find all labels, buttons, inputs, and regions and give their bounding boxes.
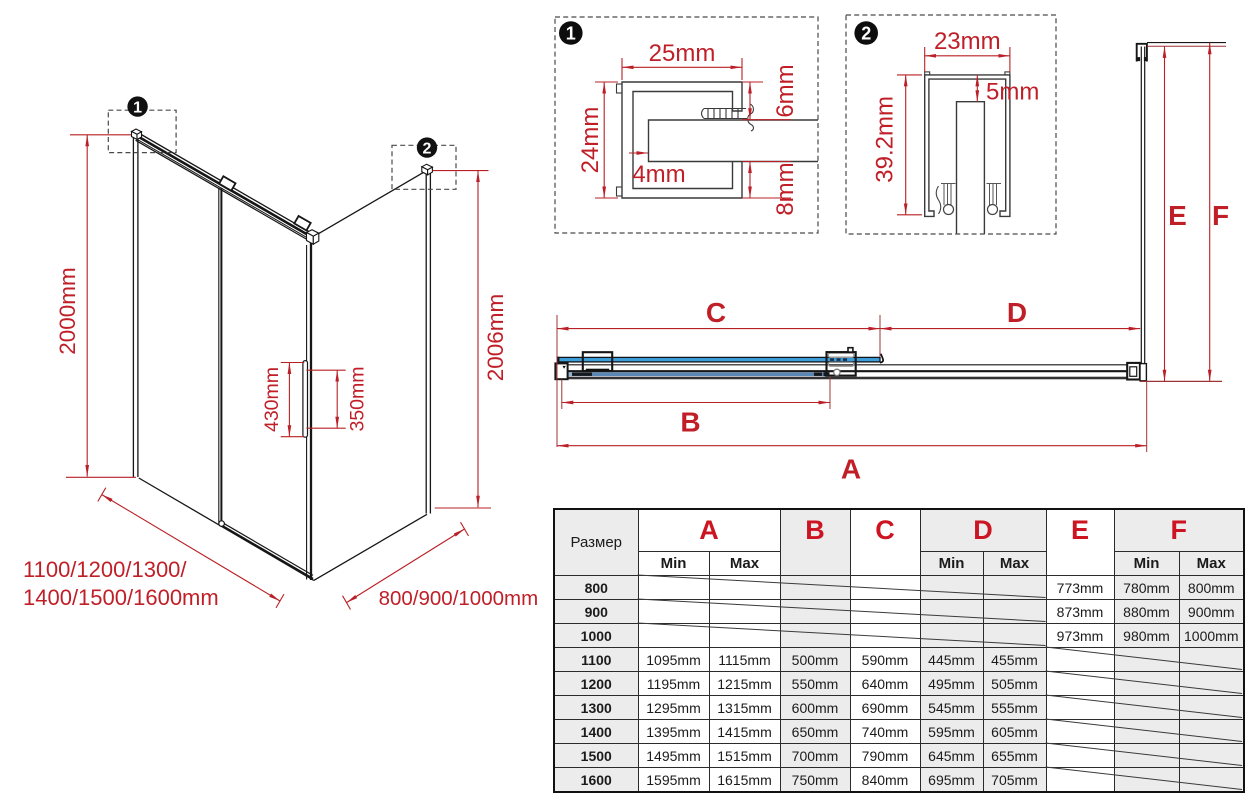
svg-text:B: B — [680, 406, 700, 437]
svg-text:A: A — [841, 454, 861, 485]
svg-text:1: 1 — [133, 99, 142, 116]
svg-text:25mm: 25mm — [649, 40, 716, 67]
svg-text:2000mm: 2000mm — [55, 267, 80, 355]
svg-text:800/900/1000mm: 800/900/1000mm — [379, 587, 539, 610]
svg-text:23mm: 23mm — [934, 28, 1001, 55]
svg-text:5mm: 5mm — [986, 78, 1039, 105]
svg-text:2: 2 — [861, 24, 871, 44]
svg-text:430mm: 430mm — [261, 367, 283, 432]
svg-text:1: 1 — [566, 24, 576, 44]
svg-text:6mm: 6mm — [772, 64, 799, 117]
svg-text:1400/1500/1600mm: 1400/1500/1600mm — [23, 585, 219, 610]
svg-text:4mm: 4mm — [632, 161, 685, 188]
svg-text:8mm: 8mm — [772, 162, 799, 215]
svg-text:C: C — [706, 297, 726, 328]
svg-text:24mm: 24mm — [577, 107, 604, 174]
svg-text:350mm: 350mm — [347, 366, 369, 431]
svg-text:F: F — [1212, 200, 1229, 231]
svg-text:2006mm: 2006mm — [483, 294, 508, 382]
svg-text:E: E — [1168, 200, 1187, 231]
svg-text:D: D — [1007, 297, 1027, 328]
svg-text:2: 2 — [423, 140, 432, 157]
svg-text:1100/1200/1300/: 1100/1200/1300/ — [23, 557, 187, 582]
svg-text:39.2mm: 39.2mm — [872, 96, 899, 183]
